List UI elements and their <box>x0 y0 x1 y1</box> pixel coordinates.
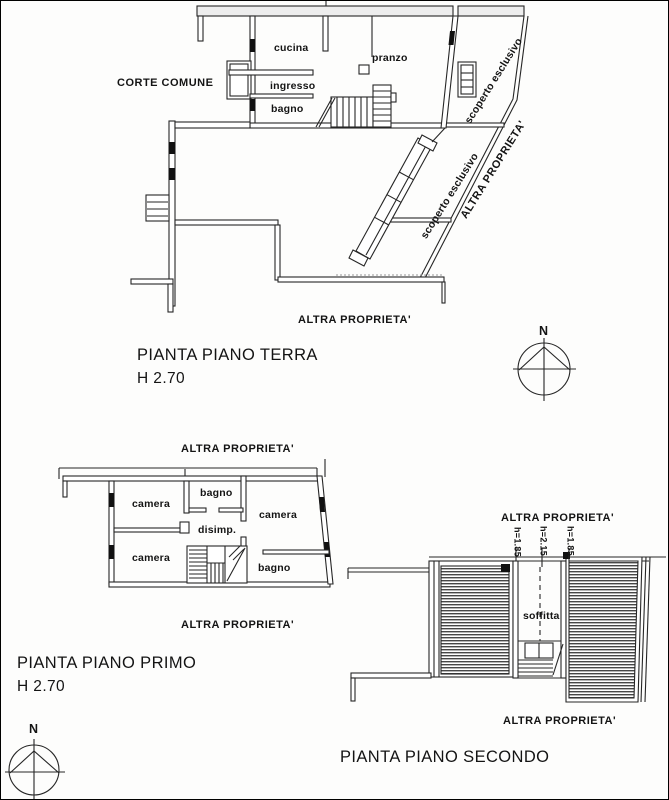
plan-title-first-floor: PIANTA PIANO PRIMO <box>17 655 196 672</box>
second-floor-plan <box>348 548 666 702</box>
room-label-disimpegno: disimp. <box>198 525 236 536</box>
boundary-label-altra-proprieta-ff-top: ALTRA PROPRIETA' <box>181 444 294 455</box>
first-floor-stairs <box>187 546 247 583</box>
room-label-camera-top-left: camera <box>132 499 170 510</box>
boundary-label-altra-proprieta-ff-bottom: ALTRA PROPRIETA' <box>181 620 294 631</box>
room-label-soffitta: soffitta <box>523 611 560 622</box>
north-label-right: N <box>539 325 548 338</box>
room-label-camera-right: camera <box>259 510 297 521</box>
courtyard-ramp <box>349 128 445 266</box>
north-arrow-icon <box>513 338 576 401</box>
room-label-bagno-top: bagno <box>200 488 233 499</box>
boundary-label-altra-proprieta-gf-bottom: ALTRA PROPRIETA' <box>298 315 411 326</box>
north-label-left: N <box>29 723 38 736</box>
room-label-ingresso: ingresso <box>270 81 315 92</box>
height-mark-right: h=1.85 <box>566 526 575 556</box>
area-label-corte-comune: CORTE COMUNE <box>117 78 213 89</box>
boundary-label-altra-proprieta-sf-top: ALTRA PROPRIETA' <box>501 513 614 524</box>
north-arrow-icon <box>5 739 65 800</box>
plan-title-ground-floor: PIANTA PIANO TERRA <box>137 347 318 364</box>
plan-height-first-floor: H 2.70 <box>17 679 65 695</box>
room-label-bagno-gf: bagno <box>271 104 304 115</box>
boundary-label-altra-proprieta-sf-bottom: ALTRA PROPRIETA' <box>503 716 616 727</box>
ground-floor-stairs <box>316 85 396 127</box>
second-floor-stairs <box>513 641 566 678</box>
height-mark-center: h=2.15 <box>539 526 548 556</box>
height-mark-left: h=1.85 <box>513 527 522 557</box>
floor-plan-linework <box>1 1 669 800</box>
room-label-pranzo: pranzo <box>372 53 408 64</box>
plan-height-ground-floor: H 2.70 <box>137 371 185 387</box>
room-label-cucina: cucina <box>274 43 308 54</box>
plan-title-second-floor: PIANTA PIANO SECONDO <box>340 749 549 766</box>
room-label-bagno-bottom: bagno <box>258 563 291 574</box>
room-label-camera-bottom-left: camera <box>132 553 170 564</box>
cadastral-floor-plan-sheet: CORTE COMUNE cucina pranzo ingresso bagn… <box>0 0 669 800</box>
